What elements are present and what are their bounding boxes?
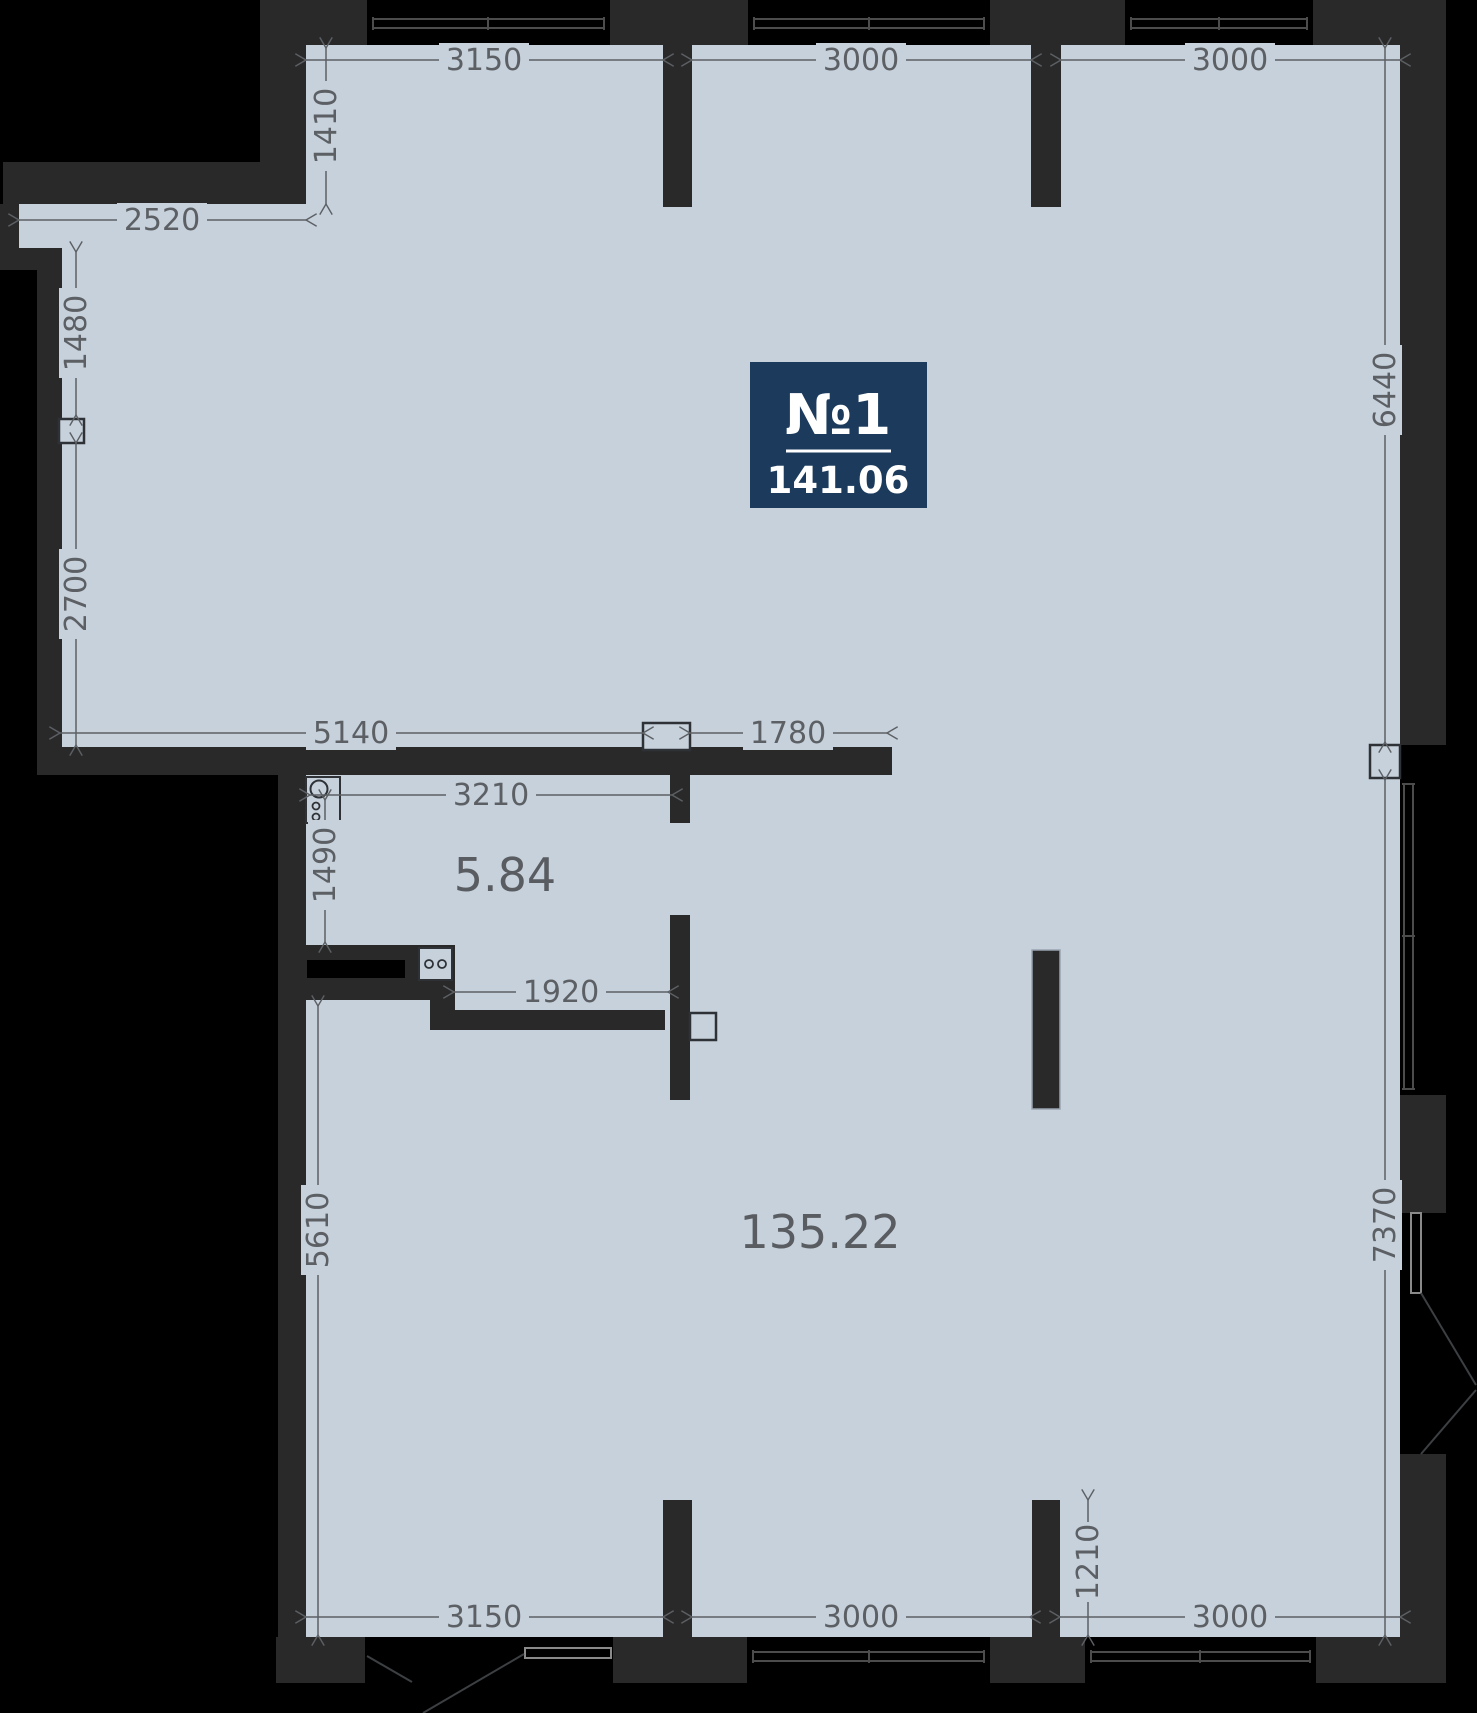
boiler-icon (306, 777, 340, 823)
left-wall-marker (59, 419, 84, 443)
dim-right-lower: 7370 (1368, 1187, 1403, 1263)
area-niche: 5.84 (454, 848, 556, 902)
stove-icon (419, 948, 452, 980)
window-top-1 (367, 0, 610, 45)
dim-niche-width: 3210 (453, 778, 529, 813)
right-wall-marker (1370, 745, 1400, 778)
dim-bottom-bay-3: 3000 (1192, 1600, 1268, 1635)
dim-mid-left: 5140 (313, 716, 389, 751)
balcony-door (1411, 1213, 1476, 1454)
wall-kitchen-c (455, 1010, 665, 1030)
wall-bottom-stub-2 (613, 1637, 747, 1683)
dim-mid-right: 1780 (750, 716, 826, 751)
wall-niche-right-lower (670, 915, 690, 1100)
floor-left-room (60, 248, 306, 747)
wall-bottom-stub-1 (276, 1637, 365, 1683)
panel-marker (690, 1013, 716, 1040)
pier-top-1 (663, 45, 692, 207)
area-main: 135.22 (740, 1205, 901, 1259)
dim-top-bay-3: 3000 (1192, 43, 1268, 78)
dim-bottom-bay-2: 3000 (823, 1600, 899, 1635)
pier-top-2 (1031, 45, 1061, 207)
floor-connector (892, 747, 1400, 775)
middle-wall-door-marker (643, 723, 690, 750)
dim-top-bay-2: 3000 (823, 43, 899, 78)
floor-area (19, 45, 1400, 1637)
dim-niche-opening: 1920 (523, 975, 599, 1010)
wall-kitchen-b (430, 1000, 455, 1030)
floor-plan: 3150 3000 3000 2520 5140 1780 3210 1920 … (0, 0, 1477, 1713)
window-right (1400, 778, 1446, 1095)
floor-plan-drawing: 3150 3000 3000 2520 5140 1780 3210 1920 … (0, 0, 1477, 1713)
pier-bottom-2 (1032, 1500, 1060, 1637)
wall-left-upper-band (3, 162, 306, 204)
dim-left-strip: 2520 (124, 203, 200, 238)
unit-number: №1 (785, 383, 891, 448)
wall-right-block (1400, 1095, 1446, 1213)
wall-left-step (0, 248, 62, 270)
wall-middle (37, 747, 892, 775)
counter-block (307, 960, 405, 978)
pier-bottom-1 (663, 1500, 692, 1637)
dim-lower-left: 5610 (301, 1192, 336, 1268)
dim-niche-height: 1490 (308, 827, 343, 903)
window-bottom-3 (1085, 1637, 1316, 1713)
dim-right-upper: 6440 (1368, 352, 1403, 428)
dim-top-bay-1: 3150 (446, 43, 522, 78)
window-top-2 (748, 0, 990, 45)
window-top-3 (1125, 0, 1313, 45)
window-bottom-2 (747, 1637, 990, 1713)
dim-left-lower: 2700 (59, 556, 94, 632)
dim-left-recess: 1410 (309, 88, 344, 164)
dim-left-upper: 1480 (59, 295, 94, 371)
unit-area: 141.06 (767, 459, 910, 502)
column-freestanding (1032, 950, 1060, 1109)
wall-bottom-stub-3 (990, 1637, 1085, 1683)
wall-bottom-stub-4 (1316, 1637, 1446, 1683)
dim-pier-offset: 1210 (1071, 1524, 1106, 1600)
unit-badge[interactable]: №1 141.06 (750, 362, 927, 508)
wall-niche-right-upper (670, 775, 690, 823)
dim-bottom-bay-1: 3150 (446, 1600, 522, 1635)
wall-left-outer (0, 204, 19, 248)
wall-right-upper (1400, 45, 1446, 745)
